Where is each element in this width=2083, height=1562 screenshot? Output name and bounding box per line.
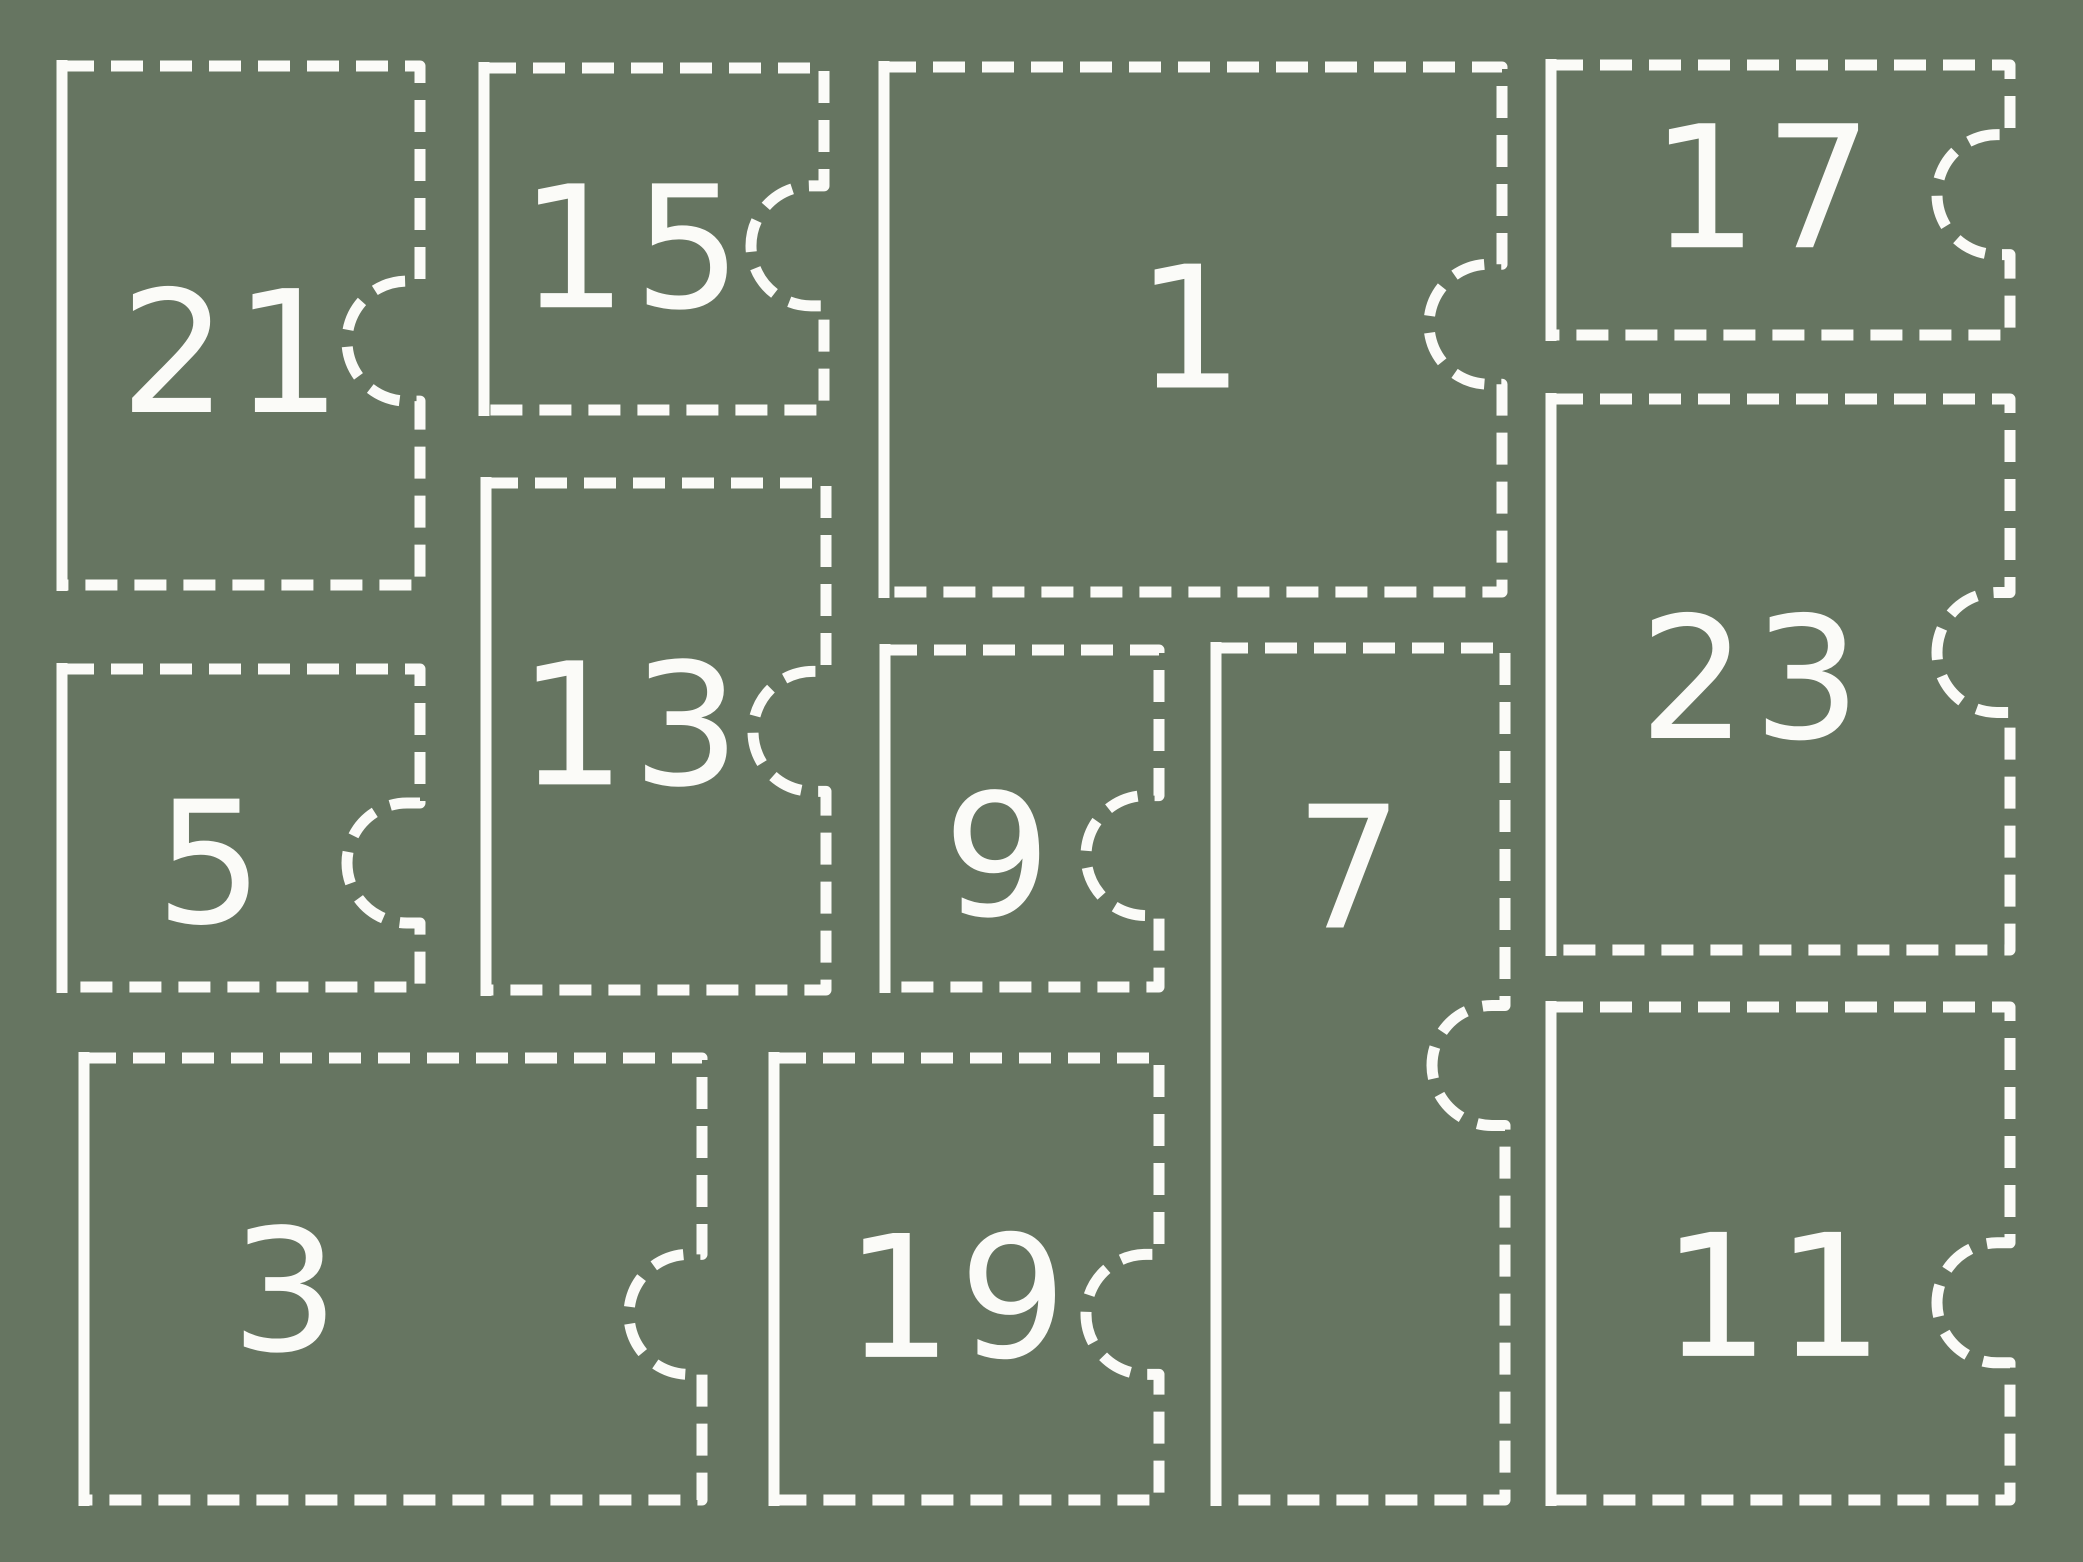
calendar-door-21[interactable]: 21 [62, 60, 420, 591]
door-number-13: 13 [518, 627, 746, 825]
door-number-3: 3 [231, 1193, 345, 1391]
door-number-15: 15 [519, 150, 747, 348]
calendar-door-3[interactable]: 3 [84, 1052, 702, 1506]
door-outline-dashed [84, 1058, 702, 1500]
calendar-door-23[interactable]: 23 [1551, 393, 2010, 956]
calendar-door-9[interactable]: 9 [885, 644, 1159, 993]
calendar-door-13[interactable]: 13 [486, 477, 826, 996]
door-number-21: 21 [120, 255, 348, 453]
door-number-7: 7 [1295, 771, 1409, 969]
calendar-door-5[interactable]: 5 [62, 663, 420, 993]
door-number-11: 11 [1662, 1199, 1890, 1397]
calendar-door-15[interactable]: 15 [484, 62, 824, 416]
door-number-9: 9 [943, 758, 1057, 956]
door-number-19: 19 [845, 1200, 1073, 1398]
calendar-door-19[interactable]: 19 [774, 1052, 1159, 1506]
door-number-17: 17 [1650, 90, 1878, 288]
advent-calendar-board: 2115117513972331911 [0, 0, 2083, 1562]
calendar-door-1[interactable]: 1 [884, 61, 1502, 598]
door-number-1: 1 [1136, 231, 1250, 429]
calendar-canvas: 2115117513972331911 [0, 0, 2083, 1562]
calendar-door-11[interactable]: 11 [1551, 1001, 2010, 1506]
door-number-23: 23 [1639, 581, 1867, 779]
calendar-door-17[interactable]: 17 [1551, 59, 2010, 341]
calendar-door-7[interactable]: 7 [1216, 642, 1505, 1506]
door-number-5: 5 [155, 766, 269, 964]
